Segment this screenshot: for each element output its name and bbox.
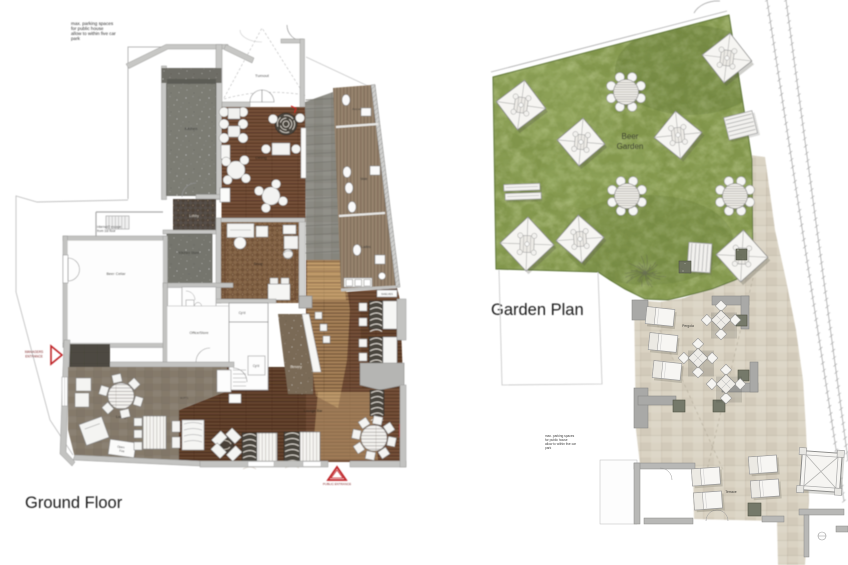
svg-text:PUBLIC ENTRANCE: PUBLIC ENTRANCE: [323, 482, 351, 486]
svg-text:Terrace: Terrace: [725, 490, 736, 494]
svg-text:Beer Cellar: Beer Cellar: [107, 272, 127, 276]
svg-text:Cp'd: Cp'd: [253, 364, 260, 368]
svg-text:Office/Store: Office/Store: [190, 331, 209, 335]
svg-text:Ground Floor: Ground Floor: [25, 494, 123, 512]
svg-text:park: park: [545, 446, 552, 450]
svg-text:Lobby: Lobby: [189, 214, 199, 218]
svg-text:park: park: [71, 36, 81, 41]
svg-text:SHELVES: SHELVES: [381, 292, 393, 296]
svg-text:Garden Plan: Garden Plan: [491, 301, 584, 319]
svg-text:Beer: Beer: [622, 132, 639, 141]
svg-text:Snug: Snug: [254, 262, 263, 266]
svg-text:Fire: Fire: [119, 449, 125, 454]
svg-text:Servery: Servery: [290, 365, 302, 369]
svg-text:Acc.wc: Acc.wc: [352, 107, 362, 111]
svg-text:MANAGERS: MANAGERS: [25, 350, 43, 354]
svg-text:Male: Male: [361, 177, 368, 181]
svg-text:from 1st floor: from 1st floor: [97, 229, 117, 233]
svg-text:Dining: Dining: [255, 155, 266, 160]
svg-text:W.PT1: W.PT1: [180, 396, 189, 400]
svg-text:Kitchen Store: Kitchen Store: [179, 251, 199, 255]
svg-text:ENTRANCE: ENTRANCE: [25, 355, 43, 359]
svg-text:Cp'd: Cp'd: [239, 311, 246, 315]
svg-text:Garden: Garden: [617, 142, 644, 151]
svg-text:Pergola: Pergola: [682, 324, 694, 328]
svg-text:Lounge Bar: Lounge Bar: [304, 409, 323, 413]
svg-text:Ladies: Ladies: [361, 245, 371, 249]
svg-text:Kitchen: Kitchen: [185, 127, 198, 131]
svg-text:Turnout: Turnout: [255, 73, 270, 78]
